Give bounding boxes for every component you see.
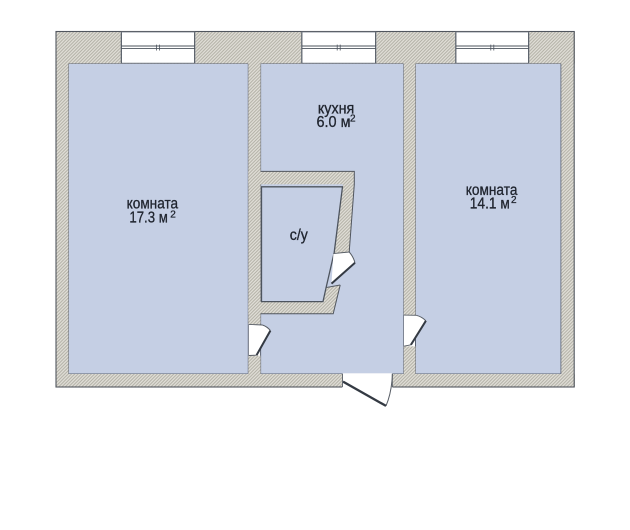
svg-text:6.0 м: 6.0 м bbox=[317, 114, 351, 131]
svg-text:2: 2 bbox=[170, 209, 176, 220]
svg-text:с/у: с/у bbox=[290, 227, 308, 244]
svg-text:14.1 м: 14.1 м bbox=[470, 195, 510, 212]
svg-text:2: 2 bbox=[511, 195, 517, 206]
svg-text:17.3 м: 17.3 м bbox=[129, 209, 168, 226]
svg-text:2: 2 bbox=[350, 114, 356, 125]
